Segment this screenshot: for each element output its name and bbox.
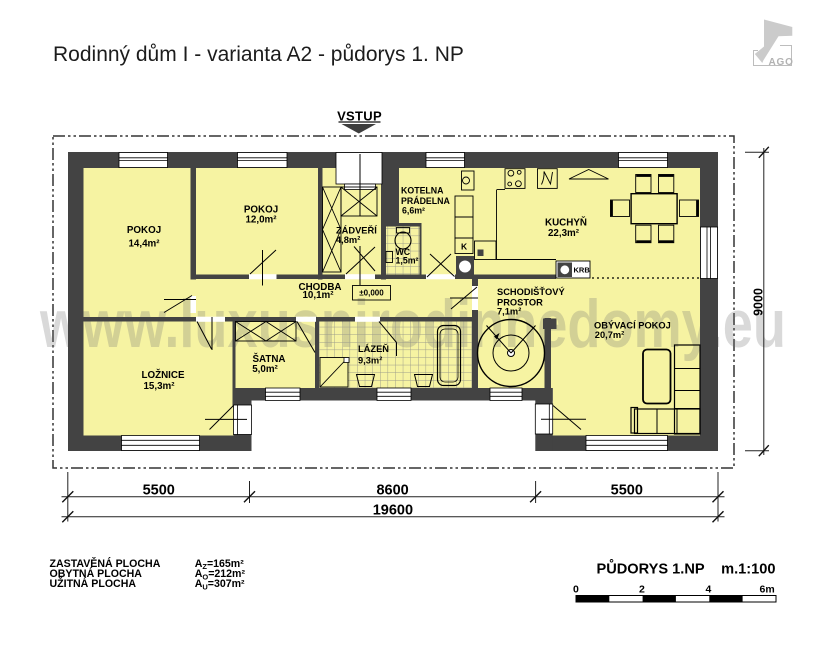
svg-text:6m: 6m bbox=[760, 584, 775, 596]
svg-text:5500: 5500 bbox=[143, 482, 175, 498]
svg-text:±0,000: ±0,000 bbox=[359, 289, 384, 298]
svg-text:14,4m²: 14,4m² bbox=[128, 239, 160, 250]
svg-text:K: K bbox=[461, 242, 468, 252]
svg-text:4: 4 bbox=[706, 584, 712, 596]
svg-text:10,1m²: 10,1m² bbox=[302, 290, 334, 301]
svg-text:PŮDORYS 1.NP: PŮDORYS 1.NP bbox=[597, 559, 705, 578]
svg-text:6,6m²: 6,6m² bbox=[402, 206, 425, 216]
svg-text:0: 0 bbox=[573, 584, 579, 596]
svg-text:LOŽNICE: LOŽNICE bbox=[142, 369, 185, 381]
svg-text:20,7m²: 20,7m² bbox=[595, 330, 624, 340]
svg-text:4,8m²: 4,8m² bbox=[336, 235, 360, 245]
svg-text:AU=307m²: AU=307m² bbox=[195, 578, 245, 591]
svg-text:m.1:100: m.1:100 bbox=[721, 562, 775, 578]
svg-text:ZÁDVEŘÍ: ZÁDVEŘÍ bbox=[336, 225, 377, 236]
svg-text:9000: 9000 bbox=[752, 288, 766, 316]
svg-text:KRB: KRB bbox=[574, 266, 591, 275]
svg-text:5500: 5500 bbox=[611, 482, 643, 498]
svg-text:7,1m²: 7,1m² bbox=[497, 307, 521, 317]
svg-text:PRÁDELNA: PRÁDELNA bbox=[401, 196, 451, 206]
svg-text:OBÝVACÍ POKOJ: OBÝVACÍ POKOJ bbox=[594, 319, 671, 330]
svg-text:1,5m²: 1,5m² bbox=[396, 255, 419, 265]
svg-text:12,0m²: 12,0m² bbox=[245, 215, 277, 226]
svg-text:POKOJ: POKOJ bbox=[127, 225, 161, 236]
svg-text:KUCHYŇ: KUCHYŇ bbox=[545, 216, 587, 228]
svg-text:9,3m²: 9,3m² bbox=[358, 355, 382, 365]
svg-text:LÁZEŇ: LÁZEŇ bbox=[358, 343, 389, 354]
svg-text:VSTUP: VSTUP bbox=[337, 109, 382, 124]
svg-text:19600: 19600 bbox=[373, 502, 413, 518]
svg-text:AGO: AGO bbox=[769, 57, 794, 68]
svg-text:8600: 8600 bbox=[376, 482, 408, 498]
svg-text:2: 2 bbox=[639, 584, 645, 596]
svg-text:SCHODIŠŤOVÝ: SCHODIŠŤOVÝ bbox=[497, 286, 565, 297]
svg-text:KOTELNA: KOTELNA bbox=[401, 185, 444, 195]
svg-text:5,0m²: 5,0m² bbox=[252, 364, 278, 375]
svg-text:Rodinný dům I - varianta A2 -: Rodinný dům I - varianta A2 - půdorys 1.… bbox=[53, 43, 464, 66]
svg-text:22,3m²: 22,3m² bbox=[548, 228, 580, 239]
svg-text:UŽITNÁ PLOCHA: UŽITNÁ PLOCHA bbox=[50, 577, 137, 590]
svg-text:15,3m²: 15,3m² bbox=[143, 381, 175, 392]
